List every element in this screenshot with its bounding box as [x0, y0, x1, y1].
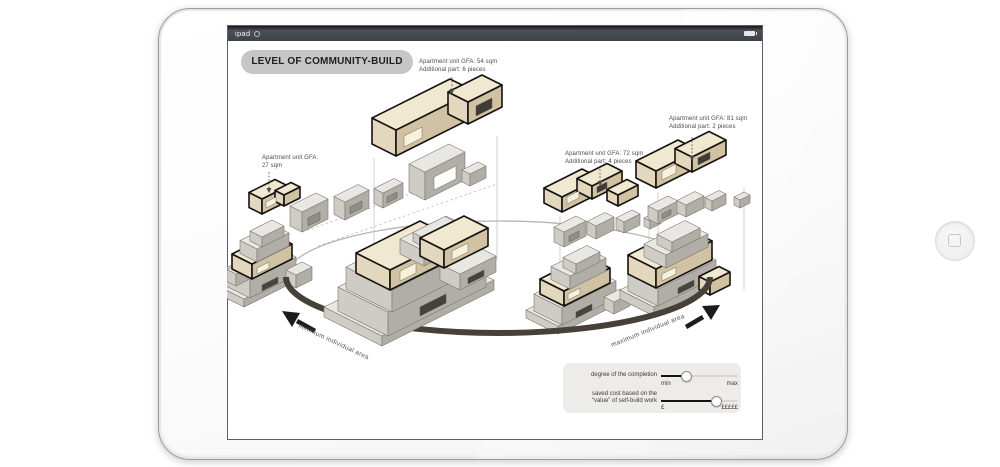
page: ipad LEVEL OF COMMUNITY-BUILD Apartment …	[0, 0, 1000, 467]
home-button[interactable]	[935, 221, 975, 261]
completion-max-label: max	[727, 381, 738, 387]
saved-cost-label-line2: “value” of self-build work	[592, 398, 657, 404]
saved-cost-slider[interactable]	[661, 400, 738, 402]
saved-cost-slider-fill	[661, 400, 716, 402]
completion-slider-knob[interactable]	[681, 371, 692, 382]
saved-cost-max-label: £££££	[721, 405, 738, 411]
home-button-icon	[948, 234, 961, 247]
completion-slider-label: degree of the completion	[567, 372, 657, 379]
completion-min-label: min	[661, 381, 671, 387]
saved-cost-min-label: £	[661, 405, 664, 411]
control-panel: degree of the completion min max saved c…	[563, 363, 741, 413]
completion-slider[interactable]	[661, 375, 738, 377]
saved-cost-label-line1: saved cost based on the	[592, 391, 657, 397]
saved-cost-slider-label: saved cost based on the “value” of self-…	[567, 391, 657, 405]
